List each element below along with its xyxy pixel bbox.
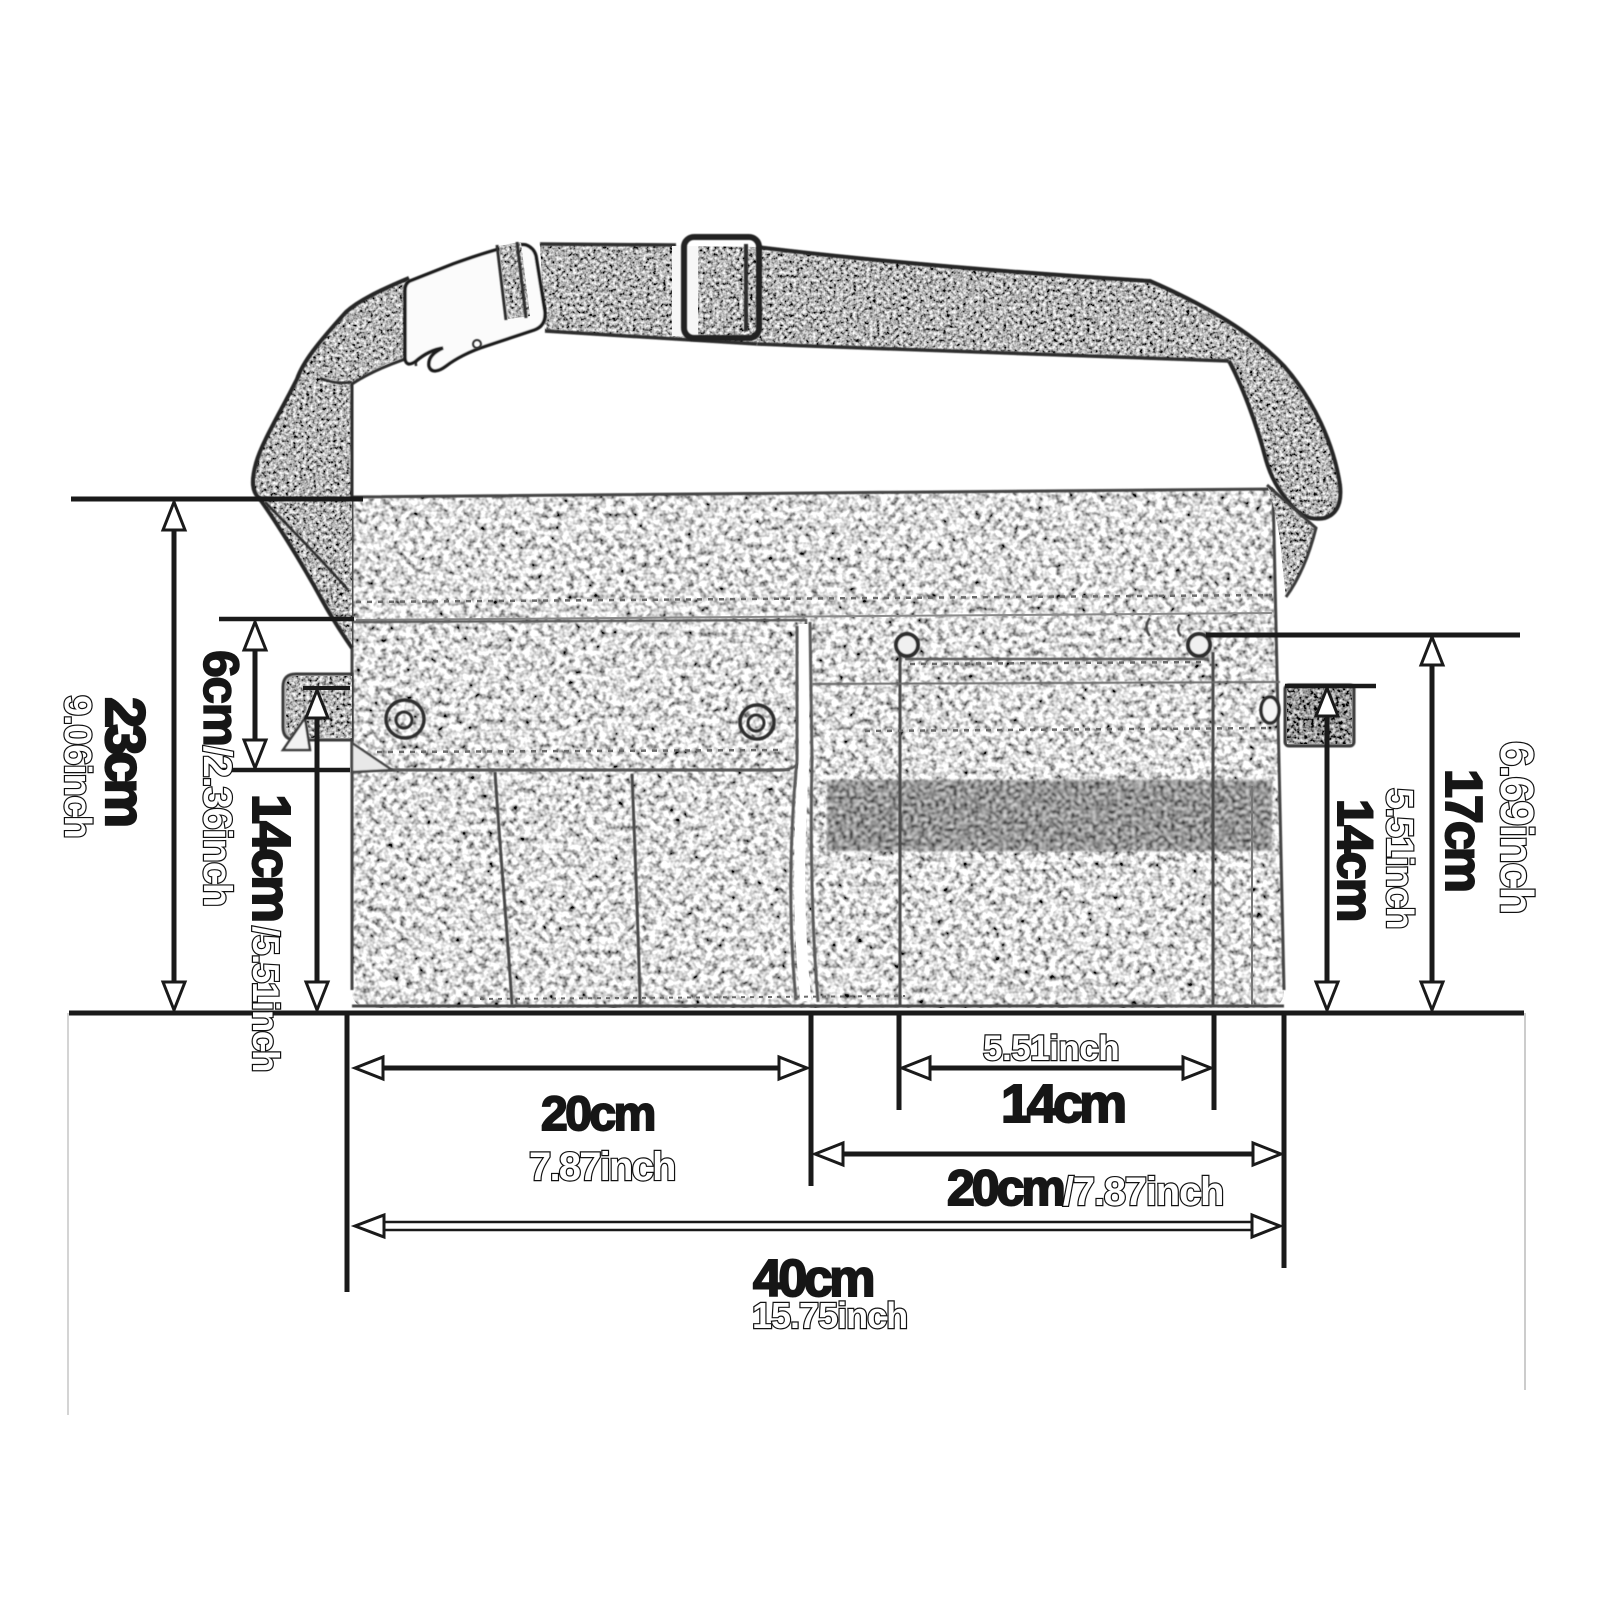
svg-text:23cm: 23cm (94, 697, 157, 825)
svg-text:20cm: 20cm (541, 1088, 654, 1141)
svg-text:14cm: 14cm (1001, 1074, 1124, 1134)
svg-text:6.69inch: 6.69inch (1491, 741, 1543, 913)
svg-text:17cm: 17cm (1434, 769, 1492, 891)
svg-text:14cm: 14cm (1327, 799, 1383, 921)
svg-text:5.51inch: 5.51inch (983, 1029, 1119, 1068)
svg-text:15.75inch: 15.75inch (752, 1295, 907, 1336)
svg-text:7.87inch: 7.87inch (529, 1145, 675, 1189)
svg-text:5.51inch: 5.51inch (1378, 788, 1420, 928)
svg-text:9.06inch: 9.06inch (56, 695, 98, 837)
